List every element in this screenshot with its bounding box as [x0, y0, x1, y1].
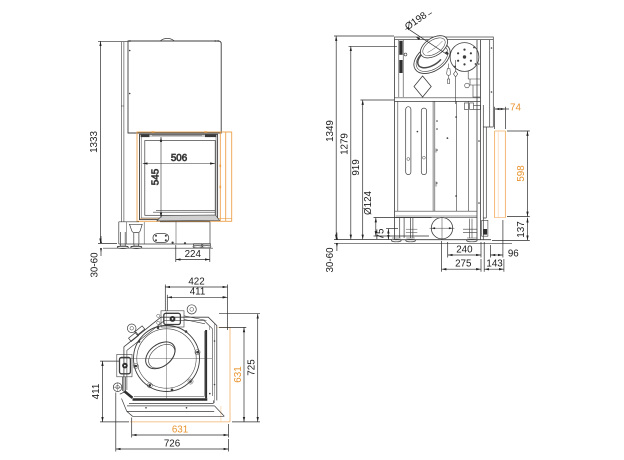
- svg-text:598: 598: [516, 165, 527, 182]
- svg-text:74: 74: [510, 103, 521, 114]
- svg-text:30-60: 30-60: [90, 252, 101, 278]
- svg-text:411: 411: [91, 384, 102, 400]
- svg-text:631: 631: [233, 366, 244, 382]
- svg-text:506: 506: [171, 153, 188, 164]
- svg-text:96: 96: [508, 249, 519, 260]
- svg-text:Ø198: Ø198: [403, 10, 429, 33]
- svg-text:726: 726: [164, 438, 181, 449]
- svg-text:1279: 1279: [339, 133, 350, 155]
- svg-text:30-60: 30-60: [325, 247, 336, 273]
- svg-text:143: 143: [486, 259, 503, 270]
- svg-text:240: 240: [456, 245, 473, 256]
- svg-text:137: 137: [516, 221, 527, 237]
- svg-text:275: 275: [455, 259, 472, 270]
- svg-text:1349: 1349: [325, 120, 336, 142]
- svg-text:545: 545: [151, 168, 162, 185]
- svg-text:224: 224: [185, 249, 202, 260]
- svg-text:919: 919: [351, 159, 362, 175]
- svg-text:411: 411: [190, 287, 206, 298]
- svg-text:725: 725: [246, 359, 257, 376]
- svg-text:631: 631: [172, 424, 188, 435]
- svg-text:Ø124: Ø124: [363, 190, 374, 215]
- svg-text:75: 75: [376, 228, 387, 239]
- svg-text:1333: 1333: [89, 131, 100, 153]
